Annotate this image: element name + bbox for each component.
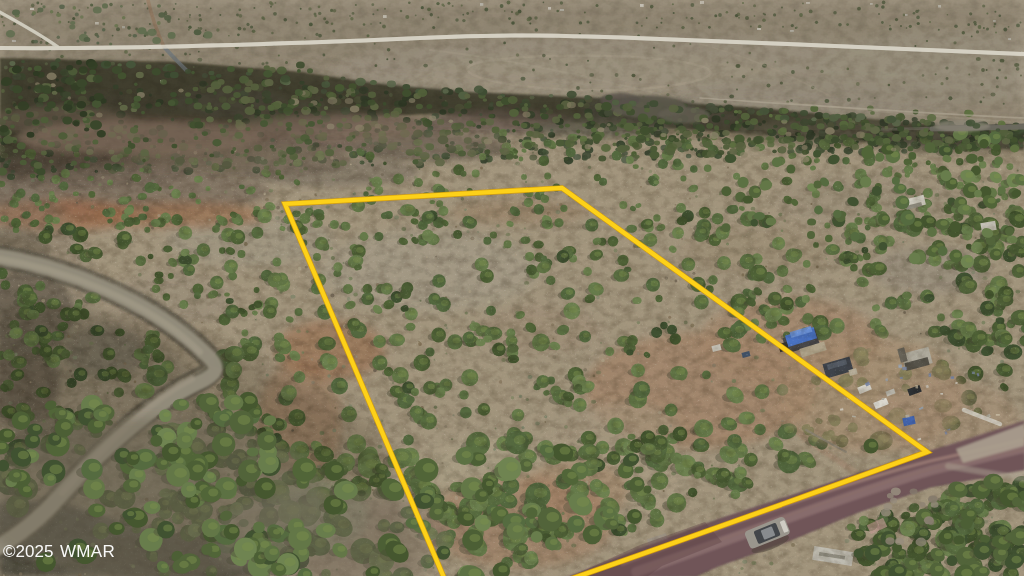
svg-text:WMAR: WMAR — [60, 542, 115, 561]
svg-text:©2025: ©2025 — [3, 542, 53, 561]
